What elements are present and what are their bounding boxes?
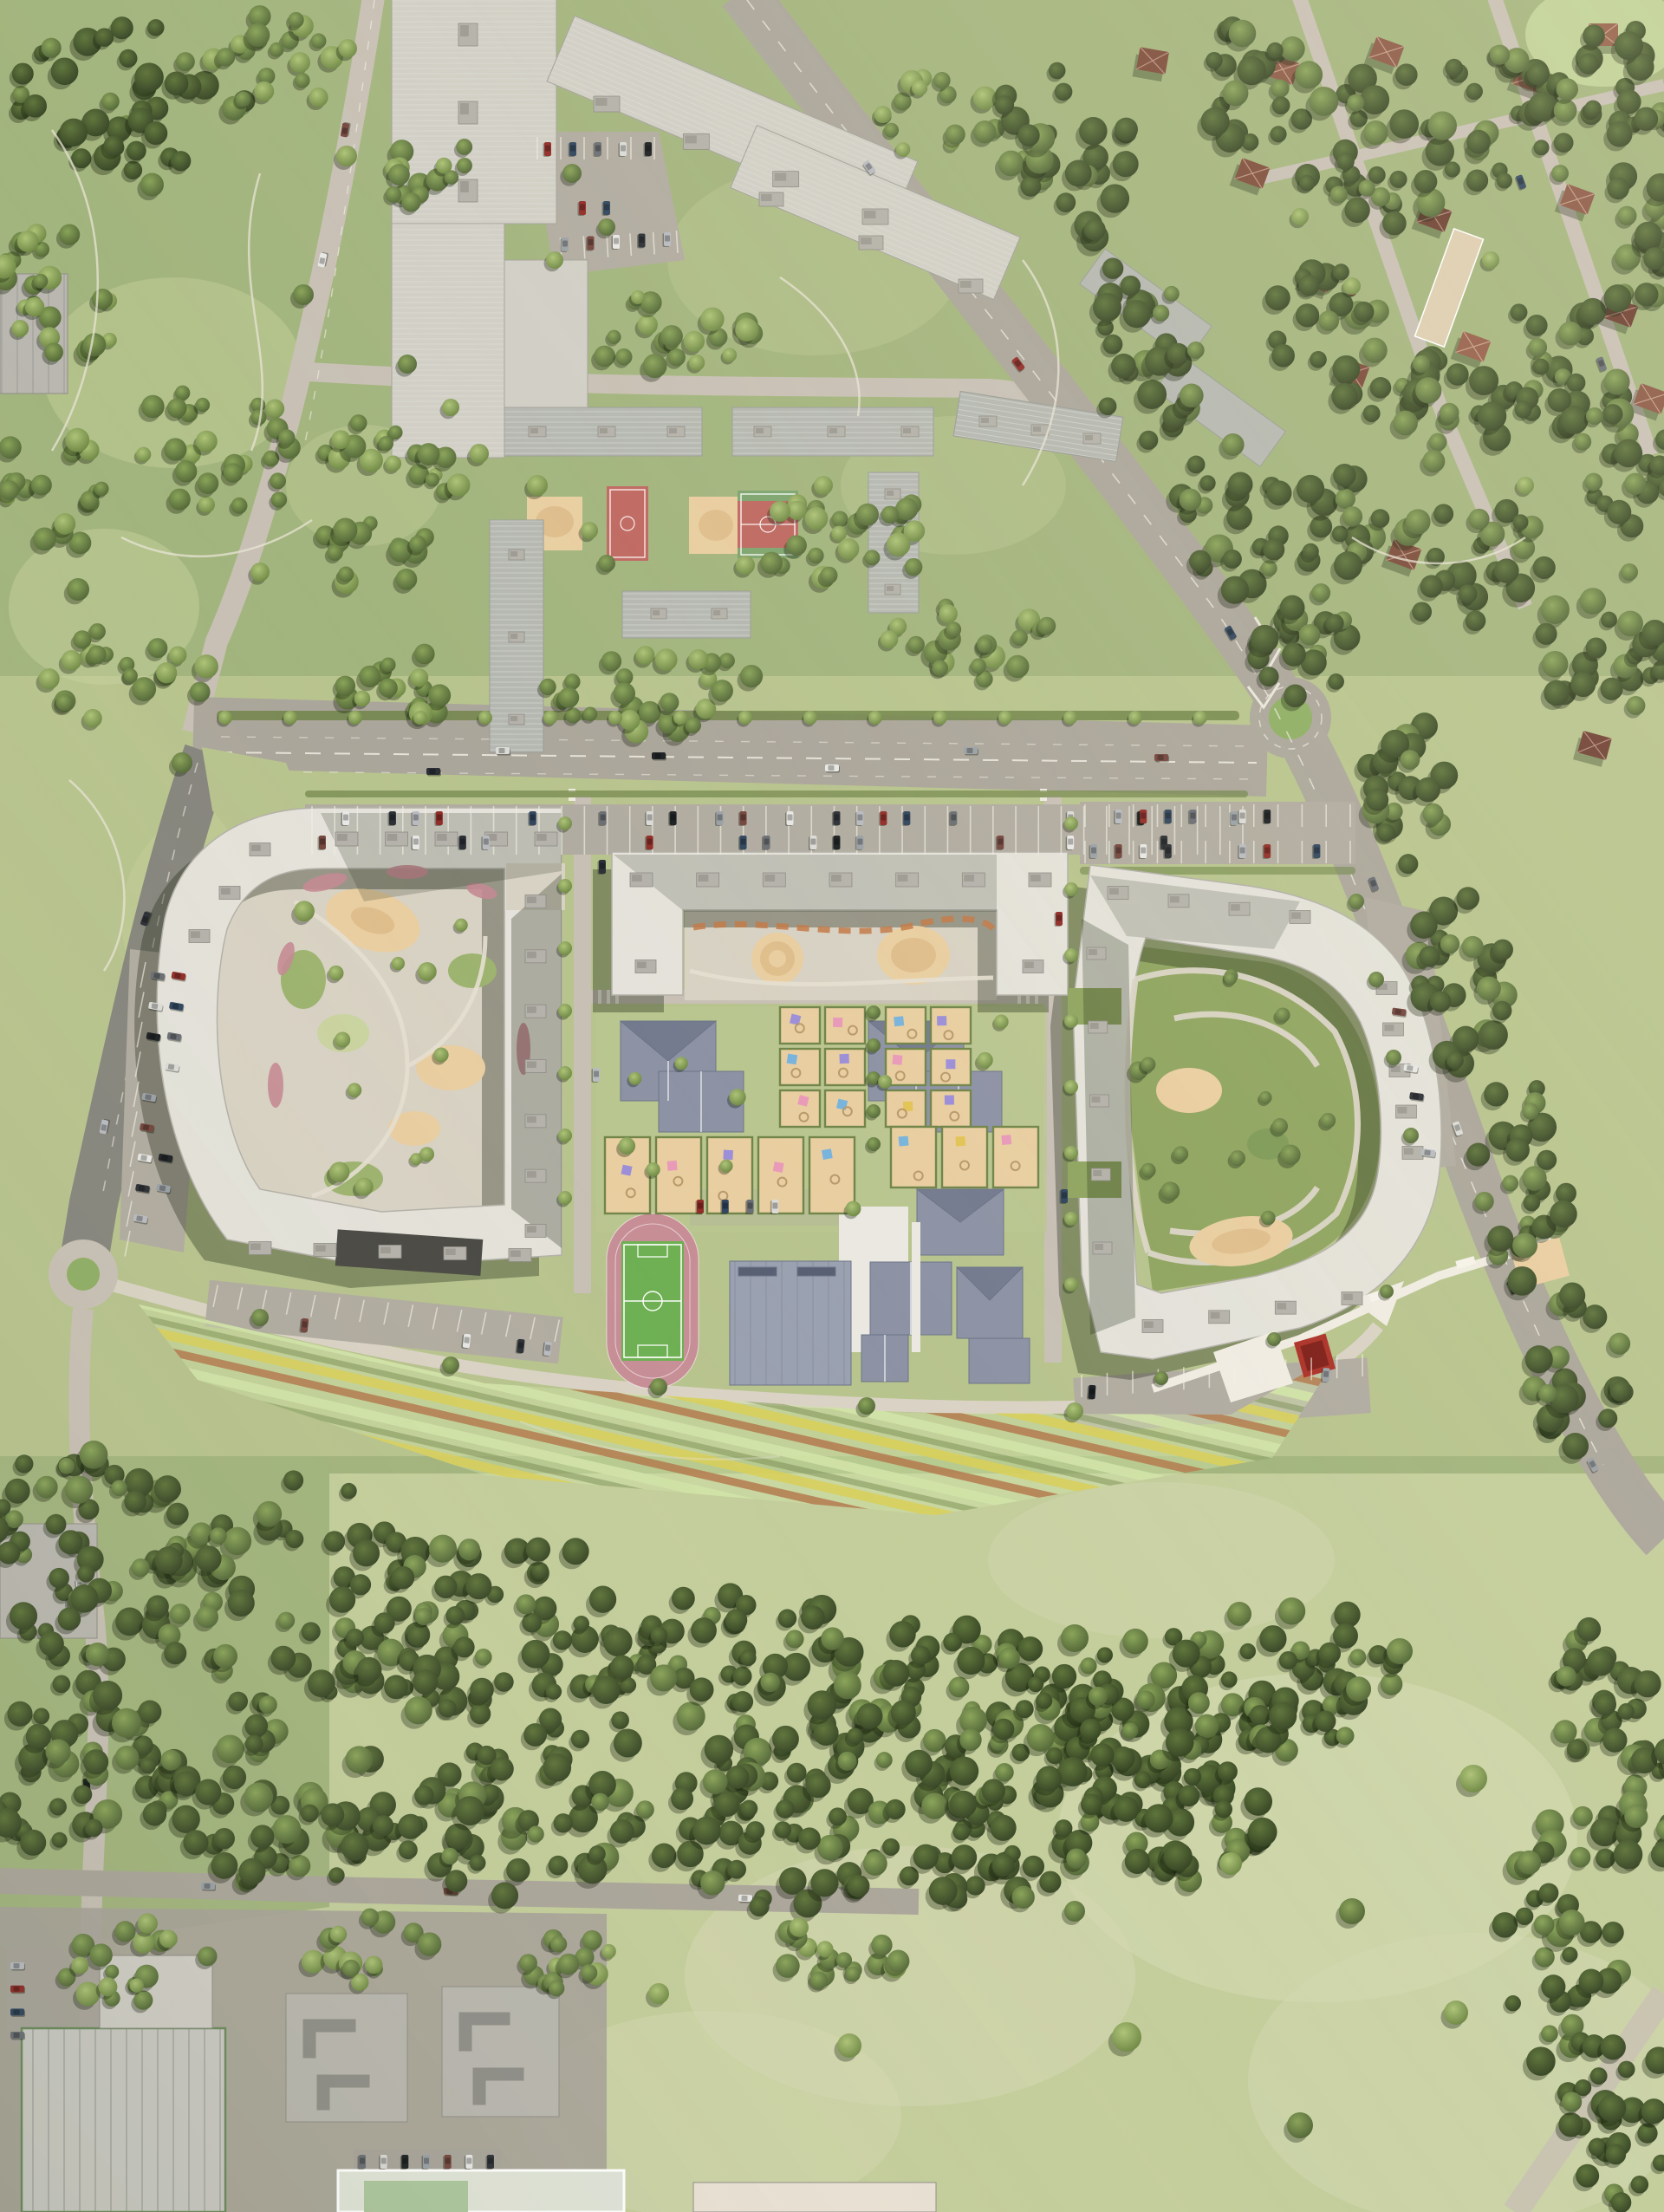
- aerial-masterplan-render: Aerial render of residential masterplan …: [0, 0, 1664, 2212]
- light-overlay: [0, 0, 1664, 2212]
- masterplan-svg: Aerial render of residential masterplan …: [0, 0, 1664, 2212]
